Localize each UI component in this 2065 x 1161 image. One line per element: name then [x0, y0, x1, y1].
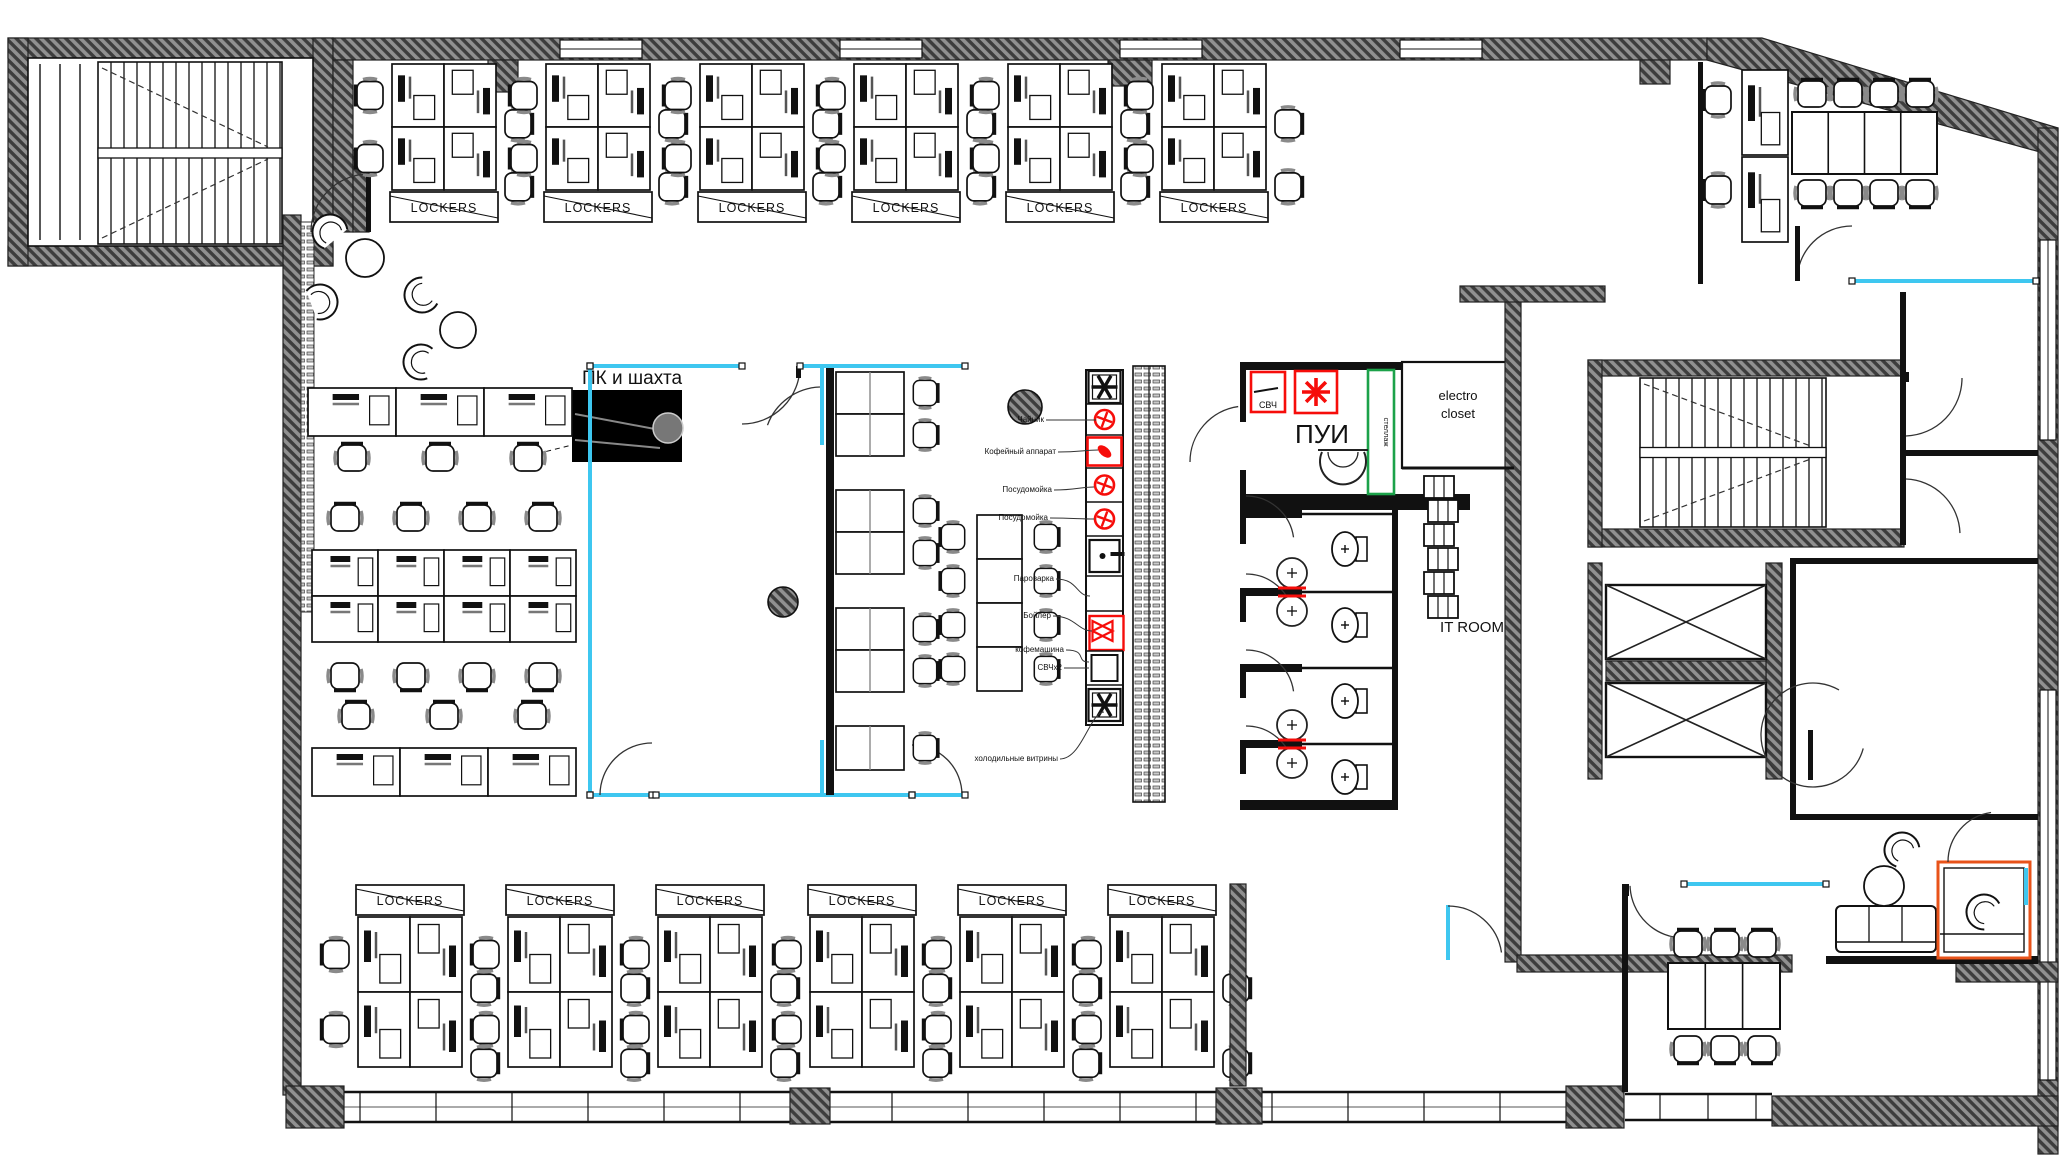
- chair: [356, 79, 384, 113]
- red-fridge-icon: [1295, 371, 1337, 413]
- desk: [444, 64, 496, 127]
- desk: [854, 127, 906, 190]
- chair: [356, 142, 384, 176]
- stairs: [1640, 378, 1826, 527]
- chair: [923, 1046, 951, 1080]
- chair: [913, 538, 938, 569]
- chair: [621, 1046, 649, 1080]
- desk: [510, 550, 576, 596]
- desk: [700, 127, 752, 190]
- chair: [1831, 180, 1865, 208]
- chair: [510, 79, 538, 113]
- chair: [515, 702, 549, 730]
- chair: [423, 444, 457, 472]
- fridge-icon: [1089, 689, 1121, 721]
- svg-text:LOCKERS: LOCKERS: [829, 894, 896, 908]
- chair: [923, 971, 951, 1005]
- chair: [913, 733, 938, 764]
- svg-text:Пароварка: Пароварка: [1014, 574, 1055, 583]
- chair: [471, 971, 499, 1005]
- chair: [526, 663, 560, 691]
- desk: [312, 596, 378, 642]
- chair: [1867, 180, 1901, 208]
- stairs: [98, 62, 282, 244]
- svg-text:Посудомойка: Посудомойка: [1002, 485, 1052, 494]
- chair: [1831, 80, 1865, 108]
- chair: [940, 522, 965, 553]
- desk: [810, 917, 862, 992]
- desk: [378, 596, 444, 642]
- svg-text:Кофейный аппарат: Кофейный аппарат: [985, 447, 1057, 456]
- desk: [508, 917, 560, 992]
- svg-text:LOCKERS: LOCKERS: [873, 201, 940, 215]
- desk: [1162, 64, 1214, 127]
- chair: [774, 938, 802, 972]
- chair: [940, 566, 965, 597]
- chair: [913, 420, 938, 451]
- floor-plan-drawing: electrocloset LOCKERS LOCKERS LOCKERS LO…: [0, 0, 2065, 1161]
- svg-text:стеллаж: стеллаж: [1382, 418, 1391, 447]
- desk: [308, 388, 396, 436]
- chair: [394, 663, 428, 691]
- desk: [658, 917, 710, 992]
- desk: [410, 917, 462, 992]
- svg-text:Чайник: Чайник: [1017, 415, 1044, 424]
- desk: [810, 992, 862, 1067]
- chair: [622, 1013, 650, 1047]
- desk: [1214, 127, 1266, 190]
- desk: [510, 596, 576, 642]
- desk: [906, 127, 958, 190]
- svg-text:ПУИ: ПУИ: [1295, 419, 1349, 449]
- chair: [621, 971, 649, 1005]
- desk: [1162, 992, 1214, 1067]
- chair: [1671, 1036, 1705, 1064]
- chair: [664, 79, 692, 113]
- desk: [1162, 917, 1214, 992]
- chair: [471, 1046, 499, 1080]
- desk: [484, 388, 572, 436]
- svg-text:LOCKERS: LOCKERS: [1027, 201, 1094, 215]
- chair: [510, 142, 538, 176]
- desk: [658, 992, 710, 1067]
- chair: [924, 1013, 952, 1047]
- chair: [472, 1013, 500, 1047]
- desk: [312, 748, 400, 796]
- desk: [444, 127, 496, 190]
- elevator: [1606, 683, 1766, 757]
- desk: [1110, 917, 1162, 992]
- chair: [328, 663, 362, 691]
- svg-text:ПК и шахта: ПК и шахта: [582, 368, 682, 389]
- toilet: [1332, 684, 1367, 718]
- chair: [1704, 173, 1732, 207]
- chair: [511, 444, 545, 472]
- svg-text:LOCKERS: LOCKERS: [1129, 894, 1196, 908]
- desk: [1742, 70, 1788, 155]
- desk: [752, 127, 804, 190]
- chair: [1034, 522, 1059, 553]
- chair: [972, 79, 1000, 113]
- chair: [1745, 930, 1779, 958]
- svg-text:LOCKERS: LOCKERS: [565, 201, 632, 215]
- desk: [400, 748, 488, 796]
- chair: [1903, 180, 1937, 208]
- chair: [913, 378, 938, 409]
- chair: [1275, 107, 1303, 141]
- chair: [526, 504, 560, 532]
- svg-text:холодильные витрины: холодильные витрины: [975, 754, 1059, 763]
- desk: [358, 992, 410, 1067]
- chair: [1708, 1036, 1742, 1064]
- svg-text:кофемашина: кофемашина: [1015, 645, 1064, 654]
- chair: [818, 79, 846, 113]
- desk: [560, 992, 612, 1067]
- desk: [1012, 992, 1064, 1067]
- desk: [862, 917, 914, 992]
- chair: [913, 496, 938, 527]
- chair: [771, 1046, 799, 1080]
- floor-plan-canvas: electrocloset LOCKERS LOCKERS LOCKERS LO…: [0, 0, 2065, 1161]
- svg-text:LOCKERS: LOCKERS: [411, 201, 478, 215]
- chair: [1745, 1036, 1779, 1064]
- server-rack: [1424, 524, 1454, 546]
- chair: [1074, 938, 1102, 972]
- desk: [410, 992, 462, 1067]
- desk: [358, 917, 410, 992]
- chair: [1903, 80, 1937, 108]
- desk: [1008, 127, 1060, 190]
- svg-text:LOCKERS: LOCKERS: [377, 894, 444, 908]
- desk: [862, 992, 914, 1067]
- svg-text:LOCKERS: LOCKERS: [527, 894, 594, 908]
- desk: [444, 550, 510, 596]
- chair: [1073, 1046, 1101, 1080]
- chair: [472, 938, 500, 972]
- chair: [394, 504, 428, 532]
- toilet: [1332, 760, 1367, 794]
- server-rack: [1428, 548, 1458, 570]
- desk: [752, 64, 804, 127]
- desk: [392, 64, 444, 127]
- svg-text:LOCKERS: LOCKERS: [677, 894, 744, 908]
- desk: [598, 127, 650, 190]
- svg-text:LOCKERS: LOCKERS: [979, 894, 1046, 908]
- chair: [322, 938, 350, 972]
- plan-svg: electrocloset LOCKERS LOCKERS LOCKERS LO…: [0, 0, 2065, 1161]
- chair: [940, 654, 965, 685]
- cafe-table: [977, 603, 1022, 647]
- svg-text:LOCKERS: LOCKERS: [1181, 201, 1248, 215]
- chair: [1073, 971, 1101, 1005]
- desk: [378, 550, 444, 596]
- desk: [1110, 992, 1162, 1067]
- chair: [1867, 80, 1901, 108]
- svg-text:LOCKERS: LOCKERS: [719, 201, 786, 215]
- chair: [924, 938, 952, 972]
- server-rack: [1424, 476, 1454, 498]
- desk: [1008, 64, 1060, 127]
- desk: [710, 992, 762, 1067]
- desk: [488, 748, 576, 796]
- server-rack: [1428, 596, 1458, 618]
- svg-text:closet: closet: [1441, 406, 1475, 421]
- chair: [460, 663, 494, 691]
- desk: [1162, 127, 1214, 190]
- chair: [460, 504, 494, 532]
- chair: [1708, 930, 1742, 958]
- chair: [322, 1013, 350, 1047]
- desk: [960, 917, 1012, 992]
- desk: [444, 596, 510, 642]
- chair: [1126, 79, 1154, 113]
- svg-text:electro: electro: [1438, 388, 1477, 403]
- chair: [1795, 80, 1829, 108]
- chair: [427, 702, 461, 730]
- desk: [710, 917, 762, 992]
- column: [768, 587, 798, 617]
- desk: [546, 64, 598, 127]
- svg-text:СВЧ: СВЧ: [1259, 400, 1277, 410]
- desk: [700, 64, 752, 127]
- toilet: [1332, 608, 1367, 642]
- chair: [335, 444, 369, 472]
- chair: [1704, 83, 1732, 117]
- chair: [771, 971, 799, 1005]
- desk: [1060, 127, 1112, 190]
- chair: [913, 656, 938, 687]
- chair: [1074, 1013, 1102, 1047]
- desk: [906, 64, 958, 127]
- desk: [392, 127, 444, 190]
- server-rack: [1428, 500, 1458, 522]
- bench-row-3: [312, 702, 576, 797]
- svg-text:Посудомойка: Посудомойка: [998, 513, 1048, 522]
- svg-text:IT ROOM: IT ROOM: [1440, 619, 1504, 636]
- chair: [940, 610, 965, 641]
- desk: [396, 388, 484, 436]
- electro-closet-right: electrocloset: [1402, 362, 1514, 468]
- desk: [598, 64, 650, 127]
- desk: [560, 917, 612, 992]
- chair: [818, 142, 846, 176]
- svg-text:СВЧх2: СВЧх2: [1037, 663, 1062, 672]
- desk: [1060, 64, 1112, 127]
- desk: [960, 992, 1012, 1067]
- chair: [1671, 930, 1705, 958]
- svg-text:Бойлер: Бойлер: [1023, 611, 1051, 620]
- chair: [913, 614, 938, 645]
- chair: [664, 142, 692, 176]
- chair: [774, 1013, 802, 1047]
- chair: [339, 702, 373, 730]
- elevator: [1606, 585, 1766, 659]
- desk: [1012, 917, 1064, 992]
- desk: [854, 64, 906, 127]
- server-rack: [1424, 572, 1454, 594]
- chair: [972, 142, 1000, 176]
- desk: [508, 992, 560, 1067]
- chair: [1275, 170, 1303, 204]
- desk: [1742, 157, 1788, 242]
- fridge-icon: [1089, 371, 1121, 403]
- chair: [1126, 142, 1154, 176]
- chair: [622, 938, 650, 972]
- bench-row-1: [308, 388, 572, 471]
- chair: [1795, 180, 1829, 208]
- desk: [546, 127, 598, 190]
- desk: [312, 550, 378, 596]
- toilet: [1332, 532, 1367, 566]
- desk: [1214, 64, 1266, 127]
- chair: [328, 504, 362, 532]
